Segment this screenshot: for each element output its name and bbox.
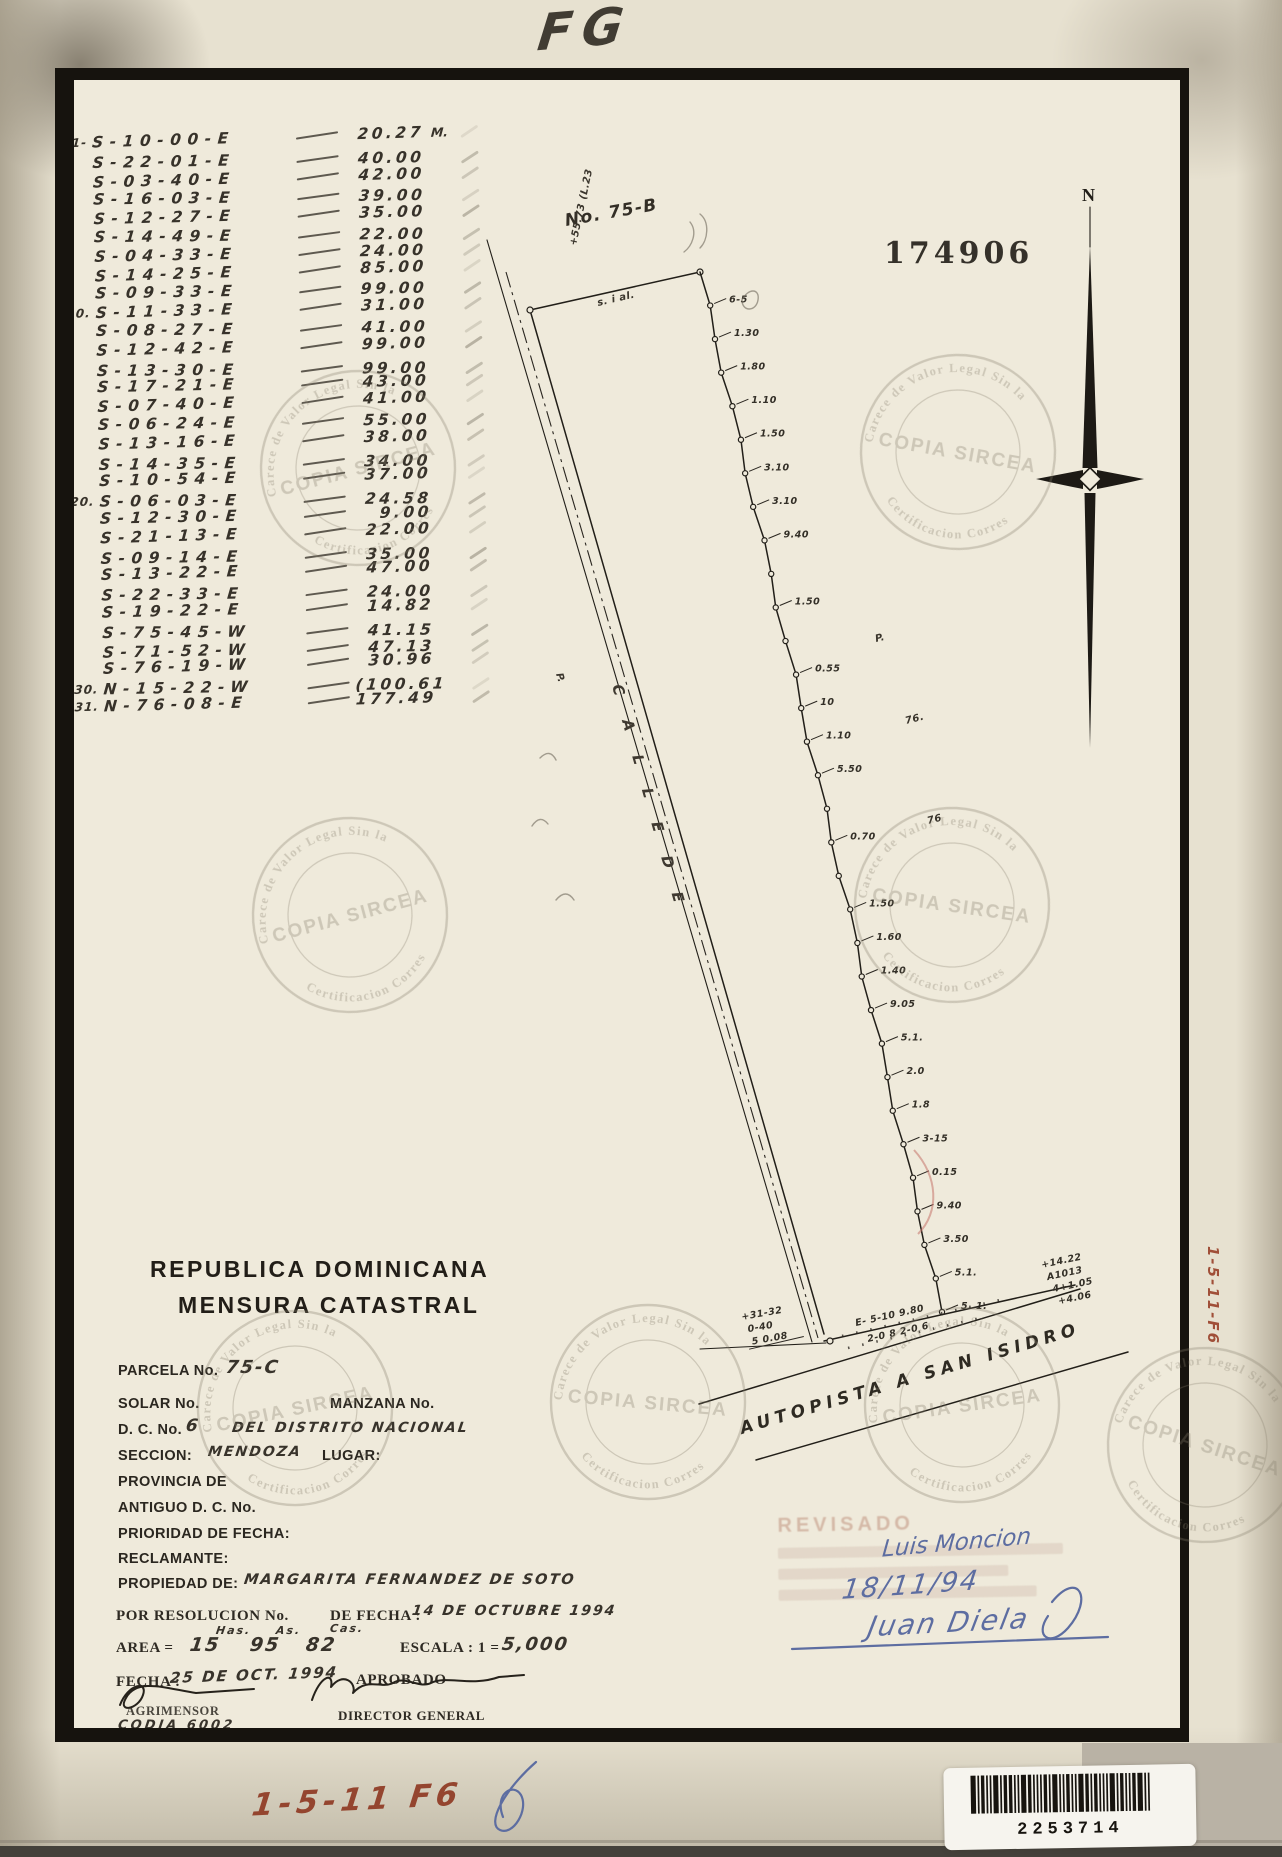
station-tick xyxy=(891,1070,903,1075)
distance-unit xyxy=(435,645,463,646)
dash-stroke xyxy=(300,324,342,332)
barcode-bar xyxy=(977,1776,979,1814)
barcode-bar xyxy=(1110,1773,1116,1811)
survey-station-point xyxy=(743,471,748,476)
bearing-value: N-76-08-E xyxy=(103,692,302,716)
distance-unit xyxy=(434,604,462,605)
station-tick xyxy=(719,332,731,337)
survey-station-point xyxy=(915,1209,920,1214)
check-slash xyxy=(466,412,484,425)
barcode-bar xyxy=(1000,1775,1002,1813)
survey-station-point xyxy=(848,907,853,912)
survey-station-point xyxy=(815,773,820,778)
distance-unit xyxy=(429,396,457,397)
dash-stroke xyxy=(307,644,349,652)
distance-unit xyxy=(432,512,460,513)
resolucion-label: POR RESOLUCION No. xyxy=(116,1608,289,1625)
margin-index-code-vertical: 1-5-11-F6 xyxy=(1204,1246,1222,1345)
survey-station-point xyxy=(836,873,841,878)
station-measure-label: 5.50 xyxy=(837,764,862,775)
survey-station-point xyxy=(793,672,798,677)
station-measure-label: 1.40 xyxy=(881,966,906,977)
barcode-bar xyxy=(1085,1774,1089,1812)
distance-value: 42.00 xyxy=(344,164,425,184)
dash-stroke xyxy=(303,472,345,480)
dash-stroke xyxy=(302,434,344,442)
codia-number: CODIA 6002 xyxy=(117,1718,236,1733)
manzana-label: MANZANA No. xyxy=(330,1396,435,1412)
barcode-bar xyxy=(1106,1773,1108,1811)
agrimensor-label: AGRIMENSOR xyxy=(126,1704,220,1719)
dash-stroke xyxy=(306,603,348,611)
station-measure-label: 3.10 xyxy=(772,496,797,507)
dash-stroke xyxy=(301,396,343,405)
survey-station-point xyxy=(751,504,756,509)
bearing-row-number xyxy=(63,388,97,389)
barcode-bar xyxy=(1014,1775,1016,1813)
bearing-row-number xyxy=(62,351,96,352)
bearing-row-number: 30. xyxy=(69,683,104,698)
station-measure-label: 1.10 xyxy=(751,395,776,406)
distance-unit xyxy=(428,304,456,305)
bearing-row-number xyxy=(64,425,98,426)
station-measure-label: 0.15 xyxy=(932,1167,957,1178)
dash-stroke xyxy=(298,231,340,239)
aprobado-label: APROBADO xyxy=(356,1672,447,1689)
dash-stroke xyxy=(302,417,344,425)
barcode-bar xyxy=(1090,1774,1092,1812)
solar-label: SOLAR No. xyxy=(118,1396,200,1412)
check-slash xyxy=(466,389,484,402)
area-as-value: 95 xyxy=(248,1634,282,1656)
barcode-bar xyxy=(1078,1774,1084,1812)
dash-stroke xyxy=(304,527,346,536)
check-slash xyxy=(467,428,485,441)
barcode-bar xyxy=(1063,1774,1065,1812)
station-tick xyxy=(725,366,737,371)
station-measure-label: 3-15 xyxy=(922,1133,948,1144)
distance-unit xyxy=(432,527,460,528)
station-measure-label: 1.10 xyxy=(826,731,851,742)
area-has-value: 15 xyxy=(188,1634,222,1656)
survey-station-point xyxy=(730,404,735,409)
survey-station-point xyxy=(933,1276,938,1281)
document-title: MENSURA CATASTRAL xyxy=(178,1292,479,1319)
bearing-row-number xyxy=(64,407,98,408)
survey-station-point xyxy=(910,1175,915,1180)
dash-stroke xyxy=(305,565,347,573)
bearing-value: S-12-27-E xyxy=(93,206,292,229)
bearing-value: S-12-42-E xyxy=(96,337,295,360)
area-has-unit: Has. xyxy=(215,1624,252,1637)
survey-station-point xyxy=(890,1108,895,1113)
barcode-bar xyxy=(1028,1775,1032,1813)
bearing-row-number xyxy=(64,445,98,446)
station-tick xyxy=(805,701,817,706)
escala-value: 5,000 xyxy=(501,1634,571,1655)
station-tick xyxy=(780,600,792,605)
distance-value: 31.00 xyxy=(347,295,428,315)
survey-station-point xyxy=(855,940,860,945)
survey-station-point xyxy=(868,1007,873,1012)
distance-value: 14.82 xyxy=(353,596,434,616)
bearing-row-number xyxy=(67,576,101,577)
bearing-row-number: 31. xyxy=(69,700,104,715)
dash-stroke xyxy=(307,682,349,690)
de-fecha-value: 14 DE OCTUBRE 1994 xyxy=(411,1603,618,1619)
station-measure-label: 3.50 xyxy=(943,1234,968,1245)
bearing-row-number xyxy=(66,519,100,520)
dash-stroke xyxy=(305,551,347,559)
distance-value: 37.00 xyxy=(350,465,431,485)
dash-stroke xyxy=(299,286,341,294)
distance-value: 20.27 xyxy=(343,123,424,144)
station-measure-label: 9.40 xyxy=(784,529,809,540)
check-slash xyxy=(471,651,489,664)
station-tick xyxy=(940,1271,952,1276)
dash-stroke xyxy=(299,265,341,274)
director-general-label: DIRECTOR GENERAL xyxy=(338,1708,485,1724)
bearing-row-number xyxy=(69,653,103,654)
bearing-value: S-19-22-E xyxy=(101,599,300,622)
station-measure-label: 1.60 xyxy=(876,932,901,943)
barcode-bar xyxy=(1043,1774,1047,1812)
station-tick xyxy=(907,1137,919,1142)
reclamante-label: RECLAMANTE: xyxy=(118,1551,229,1567)
dash-stroke xyxy=(304,496,346,504)
provincia-label: PROVINCIA DE xyxy=(118,1474,227,1490)
station-tick xyxy=(875,1003,887,1008)
survey-station-point xyxy=(738,437,743,442)
distance-unit xyxy=(433,566,461,567)
barcode-bar xyxy=(1129,1773,1131,1811)
dash-stroke xyxy=(308,696,350,704)
scanned-cadastral-document: N 6-51.301.801.101.503.103.109.401.500.5… xyxy=(0,0,1282,1857)
bearing-row-number xyxy=(69,670,103,671)
red-pen-mark xyxy=(914,1150,933,1234)
survey-station-point xyxy=(879,1041,884,1046)
parcel-mark-west: P. xyxy=(553,672,566,684)
survey-station-point xyxy=(859,974,864,979)
check-slash xyxy=(464,297,482,310)
barcode-bar xyxy=(1059,1774,1061,1812)
station-measure-label: 9.05 xyxy=(890,999,915,1010)
area-cas-value: 82 xyxy=(304,1634,338,1656)
document-stamp-number: 174906 xyxy=(884,236,1033,271)
station-tick xyxy=(811,735,823,740)
check-slash xyxy=(469,520,487,533)
street-label: C A L L E D E xyxy=(608,682,690,914)
barcode-icon xyxy=(966,1770,1173,1816)
barcode-number: 2253714 xyxy=(944,1818,1196,1841)
parcel-mark-east-3: 76 xyxy=(926,813,943,827)
barcode-sticker: 2253714 xyxy=(943,1764,1196,1850)
revision-stamp-word: REVISADO xyxy=(777,1513,914,1537)
prioridad-label: PRIORIDAD DE FECHA: xyxy=(118,1526,290,1542)
station-measure-label: 1.8 xyxy=(912,1100,930,1111)
check-slash xyxy=(464,281,482,294)
station-tick xyxy=(736,399,748,404)
dash-stroke xyxy=(304,510,346,518)
barcode-bar xyxy=(1040,1774,1042,1812)
dash-stroke xyxy=(300,341,342,349)
parcela-value: 75-C xyxy=(225,1357,282,1378)
bearing-value: S-76-19-W xyxy=(102,654,301,678)
distance-unit xyxy=(430,435,458,436)
survey-station-point xyxy=(901,1142,906,1147)
dash-stroke xyxy=(301,379,343,387)
station-measure-label: 1.50 xyxy=(795,596,820,607)
dash-stroke xyxy=(305,589,347,597)
distance-unit xyxy=(431,473,459,474)
barcode-bar xyxy=(1125,1773,1127,1811)
dash-stroke xyxy=(301,365,343,373)
check-slash xyxy=(469,559,487,572)
lugar-label: LUGAR: xyxy=(322,1448,381,1464)
bearing-row-number xyxy=(61,294,95,295)
station-tick xyxy=(897,1104,909,1109)
barcode-bar xyxy=(1066,1774,1070,1812)
dash-stroke xyxy=(306,627,348,635)
survey-station-point xyxy=(762,538,767,543)
parcel-mark-east-1: P. xyxy=(874,632,886,645)
bearing-row-number xyxy=(65,482,99,483)
country-title: REPUBLICA DOMINICANA xyxy=(150,1256,489,1283)
distance-value: 41.00 xyxy=(349,388,430,409)
station-tick xyxy=(769,533,781,538)
barcode-bar xyxy=(1017,1775,1019,1813)
dash-stroke xyxy=(303,458,345,466)
distance-value: 38.00 xyxy=(350,426,431,446)
barcode-bar xyxy=(1049,1774,1051,1812)
barcode-bar xyxy=(1116,1773,1118,1811)
propiedad-value: MARGARITA FERNANDEZ DE SOTO xyxy=(243,1572,577,1588)
station-measure-label: 1.50 xyxy=(869,898,894,909)
barcode-bar xyxy=(1132,1773,1136,1811)
barcode-bar xyxy=(1003,1775,1007,1813)
check-slash xyxy=(472,690,490,703)
ink-squiggle xyxy=(684,214,707,252)
station-measure-label: 2.0 xyxy=(906,1066,924,1077)
area-label: AREA = xyxy=(116,1640,174,1657)
distance-unit: M. xyxy=(423,124,452,140)
area-as-unit: As. xyxy=(275,1624,302,1637)
barcode-bar xyxy=(970,1776,976,1814)
barcode-bar xyxy=(1144,1773,1146,1811)
station-tick xyxy=(822,768,834,773)
station-tick xyxy=(714,299,726,304)
station-measure-label: 5.1. xyxy=(955,1267,977,1278)
bearing-row-number xyxy=(60,220,94,221)
station-measure-label: 0.70 xyxy=(850,831,875,842)
barcode-bar xyxy=(981,1775,985,1813)
check-slash xyxy=(462,204,480,217)
distance-value: 47.00 xyxy=(352,557,433,577)
station-tick xyxy=(854,902,866,907)
barcode-bar xyxy=(1094,1774,1098,1812)
north-letter: N xyxy=(1082,185,1095,205)
check-slash xyxy=(464,320,482,333)
survey-station-point xyxy=(829,840,834,845)
check-slash xyxy=(462,227,480,240)
station-tick xyxy=(835,835,847,840)
distance-value: 177.49 xyxy=(355,688,436,708)
station-measure-label: 1.80 xyxy=(740,362,765,373)
barcode-bar xyxy=(1099,1773,1101,1811)
seccion-value: MENDOZA xyxy=(207,1444,303,1460)
station-tick xyxy=(749,466,761,471)
distance-value: 30.96 xyxy=(354,650,435,671)
barcode-bar xyxy=(1009,1775,1013,1813)
parcel-east-boundary xyxy=(700,272,942,1312)
top-line-note: s. i al. xyxy=(596,290,636,309)
station-tick xyxy=(886,1037,898,1042)
bearing-row-number xyxy=(61,276,95,277)
survey-station-point xyxy=(708,303,713,308)
station-tick xyxy=(861,936,873,941)
station-measure-label: 9.40 xyxy=(936,1200,961,1211)
distance-unit xyxy=(425,173,453,174)
bearing-value: S-13-22-E xyxy=(100,561,299,585)
check-slash xyxy=(470,597,488,610)
check-slash xyxy=(467,466,485,479)
barcode-bar xyxy=(1021,1775,1027,1813)
check-slash xyxy=(465,374,483,387)
dc-label: D. C. No. xyxy=(118,1422,182,1438)
distance-value: 35.00 xyxy=(345,203,426,223)
station-tick xyxy=(800,668,812,673)
bearing-row-number: 20. xyxy=(65,495,100,509)
check-slash xyxy=(462,189,480,202)
barcode-bar xyxy=(1033,1775,1035,1813)
check-slash xyxy=(463,258,481,271)
barcode-bar xyxy=(1052,1774,1058,1812)
barcode-bar xyxy=(1036,1775,1038,1813)
distance-unit xyxy=(426,211,454,212)
bearing-row-number xyxy=(66,539,100,540)
antiguo-dc-label: ANTIGUO D. C. No. xyxy=(118,1500,256,1516)
distance-unit xyxy=(427,265,455,266)
check-slash xyxy=(465,335,483,348)
check-slash xyxy=(461,166,479,179)
propiedad-label: PROPIEDAD DE: xyxy=(118,1576,238,1592)
barcode-bar xyxy=(1103,1773,1105,1811)
station-tick xyxy=(928,1238,940,1243)
dash-stroke xyxy=(297,193,339,201)
station-measure-label: 10 xyxy=(820,697,834,708)
station-measure-label: 5.1. xyxy=(901,1033,923,1044)
filing-annotation: FG xyxy=(535,0,637,63)
station-measure-label: 3.10 xyxy=(764,462,789,473)
check-slash xyxy=(463,243,481,256)
barcode-bar xyxy=(1148,1773,1150,1811)
survey-station-point xyxy=(799,706,804,711)
dc-district-value: DEL DISTRITO NACIONAL xyxy=(231,1420,470,1436)
corner-note-line: +31-32 xyxy=(741,1305,784,1323)
station-measure-label: 1.30 xyxy=(734,328,759,339)
corner-note-southwest: +31-32 0-40 5 0.08 xyxy=(741,1302,805,1349)
station-measure-label: 1.50 xyxy=(760,429,785,440)
station-tick xyxy=(866,970,878,975)
distance-value: 22.00 xyxy=(352,519,433,540)
bearing-row-number xyxy=(61,257,95,258)
area-cas-unit: Cas. xyxy=(329,1622,365,1635)
dash-stroke xyxy=(297,172,339,180)
barcode-bar xyxy=(1071,1774,1073,1812)
seccion-label: SECCION: xyxy=(118,1448,192,1464)
check-slash xyxy=(461,150,479,163)
north-arrow: N xyxy=(1036,185,1144,748)
escala-label: ESCALA : 1 = xyxy=(400,1640,500,1657)
barcode-bar xyxy=(993,1775,999,1813)
barcode-bar xyxy=(1075,1774,1077,1812)
dash-stroke xyxy=(298,210,340,218)
survey-station-point xyxy=(885,1075,890,1080)
survey-station-point xyxy=(773,605,778,610)
check-slash xyxy=(468,505,486,518)
barcode-bar xyxy=(1120,1773,1124,1811)
survey-station-point xyxy=(719,370,724,375)
distance-unit xyxy=(426,249,454,250)
barcode-bar xyxy=(990,1775,992,1813)
dash-stroke xyxy=(296,132,338,141)
survey-station-point xyxy=(769,571,774,576)
parcela-label: PARCELA No. xyxy=(118,1363,218,1379)
bearing-row-number xyxy=(67,559,101,560)
station-tick xyxy=(757,500,769,505)
dash-stroke xyxy=(296,155,338,163)
plan-annotations: No. 75-B +55.73 (L.23 s. i al. C A L L E… xyxy=(532,168,1097,1439)
dash-stroke xyxy=(307,658,349,667)
check-slash xyxy=(471,623,489,636)
barcode-bar xyxy=(986,1775,988,1813)
barcode-bar xyxy=(1137,1773,1143,1811)
bearing-row-number: 1- xyxy=(58,136,93,151)
bearing-row-number xyxy=(68,613,102,614)
distance-value: 99.00 xyxy=(348,334,429,354)
survey-station-point xyxy=(824,806,829,811)
corner-note-southeast: +14.22 A1013 4+1.05 +4.06 xyxy=(1040,1250,1096,1309)
distance-unit xyxy=(429,381,457,382)
bearing-row-number xyxy=(59,183,93,184)
distance-unit xyxy=(436,697,464,698)
pencil-marks xyxy=(532,753,574,900)
bearing-distance-table: 1-S-10-00-E20.27M.S-22-01-E40.00S-03-40-… xyxy=(58,127,500,719)
survey-station-point xyxy=(783,638,788,643)
distance-unit xyxy=(435,658,463,659)
survey-station-point xyxy=(804,739,809,744)
station-measure-label: 0.55 xyxy=(815,664,840,675)
dash-stroke xyxy=(298,248,340,256)
bearing-row-number: 10. xyxy=(61,307,96,322)
survey-station-point xyxy=(712,336,717,341)
dash-stroke xyxy=(300,303,342,311)
check-slash xyxy=(460,124,478,137)
parcel-boundaries: 6-51.301.801.101.503.103.109.401.500.551… xyxy=(487,240,1128,1460)
bearing-row-number xyxy=(59,163,93,164)
distance-unit xyxy=(428,342,456,343)
survey-station-point xyxy=(922,1242,927,1247)
parcel-mark-east-2: 76. xyxy=(904,712,925,727)
station-tick xyxy=(745,433,757,438)
dc-value: 6 xyxy=(185,1416,202,1436)
survey-stations: 6-51.301.801.101.503.103.109.401.500.551… xyxy=(708,295,988,1315)
bearing-value: S-10-54-E xyxy=(98,468,297,491)
distance-value: 85.00 xyxy=(346,257,427,278)
